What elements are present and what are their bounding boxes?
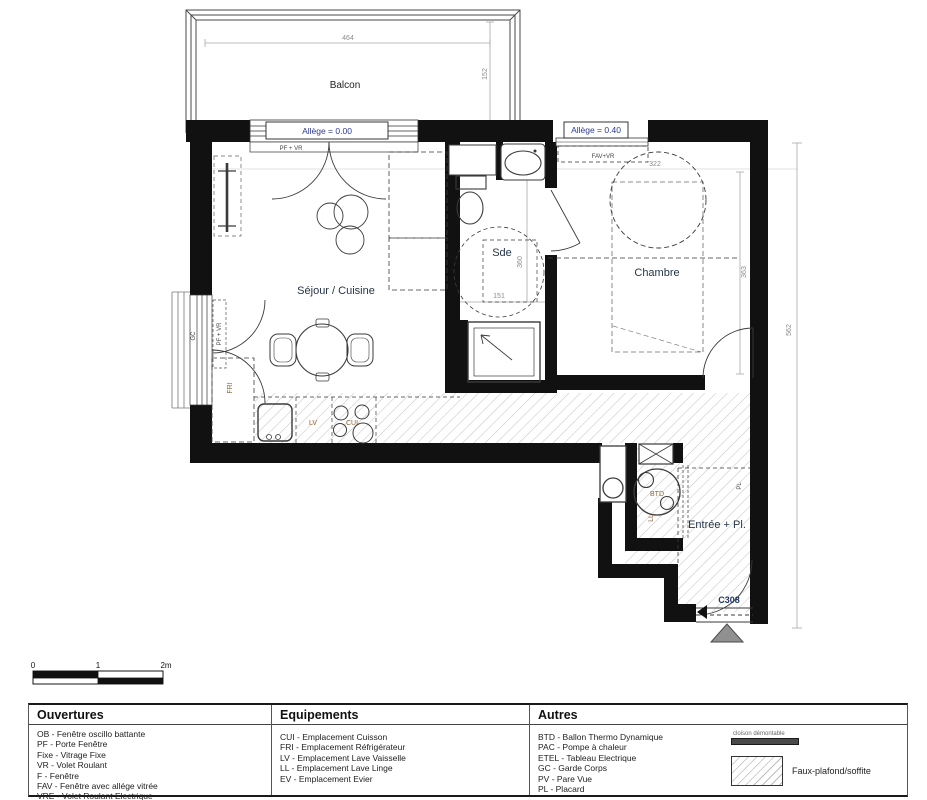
fri-label: FRI xyxy=(227,382,234,393)
scale-0: 0 xyxy=(31,661,36,670)
windows xyxy=(190,120,648,405)
dim-152: 152 xyxy=(482,68,489,80)
pf-vr-top-label: PF + VR xyxy=(280,146,304,152)
entrance-triangle xyxy=(711,624,743,642)
legend-autres: Autres BTD - Ballon Thermo Dynamique PAC… xyxy=(529,705,907,795)
dim-360: 360 xyxy=(517,256,524,268)
legend-item: VRE - Volet Roulant Electrique xyxy=(37,791,263,800)
gc-label: GC xyxy=(191,331,197,341)
legend-ouvertures: Ouvertures OB - Fenêtre oscillo battante… xyxy=(29,705,271,795)
legend-equipements-title: Equipements xyxy=(272,705,529,725)
dim-322: 322 xyxy=(649,161,661,168)
chambre-label: Chambre xyxy=(634,267,679,279)
balcony-label: Balcon xyxy=(330,80,361,91)
legend-item: LL - Emplacement Lave Linge xyxy=(280,763,521,773)
legend-item: LV - Emplacement Lave Vaisselle xyxy=(280,753,521,763)
legend-item: PF - Porte Fenêtre xyxy=(37,739,263,749)
floor-plan-drawing: Balcon 464 152 Allège = 0.00 PF + VR All… xyxy=(0,0,927,700)
legend-item: CUI - Emplacement Cuisson xyxy=(280,732,521,742)
ll-label: LL xyxy=(648,514,655,522)
dim-464: 464 xyxy=(342,35,354,42)
legend-item: FAV - Fenêtre avec allége vitrée xyxy=(37,781,263,791)
faux-plafond-label: Faux-plafond/soffite xyxy=(792,766,871,776)
dim-363: 363 xyxy=(741,266,748,278)
sde-label: Sde xyxy=(492,247,512,259)
bedroom-furniture xyxy=(548,152,738,352)
scale-2m: 2m xyxy=(160,661,171,670)
legend-item: PV - Pare Vue xyxy=(538,774,723,784)
scale-bar xyxy=(33,671,163,684)
legend-item: OB - Fenêtre oscillo battante xyxy=(37,729,263,739)
cui-label: CUI xyxy=(346,420,358,427)
legend-item: FRI - Emplacement Réfrigérateur xyxy=(280,742,521,752)
entree-label: Entrée + Pl. xyxy=(688,519,746,531)
legend-item: VR - Volet Roulant xyxy=(37,760,263,770)
btd-label: BTD xyxy=(650,491,664,498)
legend-item: GC - Garde Corps xyxy=(538,763,723,773)
dim-562: 562 xyxy=(786,324,793,336)
legend-ouvertures-title: Ouvertures xyxy=(29,705,271,725)
guard-rail xyxy=(172,292,190,408)
lv-label: LV xyxy=(309,420,317,427)
legend-symbols: cloison démontable Faux-plafond/soffite xyxy=(731,725,871,795)
legend-item: ETEL - Tableau Electrique xyxy=(538,753,723,763)
fav-vr-label: FAV+VR xyxy=(592,154,615,160)
cloison-demontable-label: cloison démontable xyxy=(733,731,871,737)
allege-000-label: Allège = 0.00 xyxy=(302,126,352,136)
legend-item: PAC - Pompe à chaleur xyxy=(538,742,723,752)
sejour-label: Séjour / Cuisine xyxy=(297,285,375,297)
legend-item: BTD - Ballon Thermo Dynamique xyxy=(538,732,723,742)
legend-item: Fixe - Vitrage Fixe xyxy=(37,750,263,760)
unit-number: C308 xyxy=(718,595,740,605)
legend-item: EV - Emplacement Evier xyxy=(280,774,521,784)
walls xyxy=(186,120,768,624)
balcony-railing xyxy=(186,10,520,133)
legend-autres-title: Autres xyxy=(530,705,907,725)
pl-label: PL xyxy=(737,482,743,490)
legend-item: PL - Placard xyxy=(538,784,723,794)
legend: Ouvertures OB - Fenêtre oscillo battante… xyxy=(28,703,908,797)
scale-1: 1 xyxy=(96,661,101,670)
legend-item: F - Fenêtre xyxy=(37,771,263,781)
floor-plan-page: Balcon 464 152 Allège = 0.00 PF + VR All… xyxy=(0,0,927,800)
pf-vr-left-label: PF + VR xyxy=(217,322,223,346)
faux-plafond-swatch xyxy=(731,756,783,786)
legend-equipements: Equipements CUI - Emplacement Cuisson FR… xyxy=(271,705,529,795)
dim-151: 151 xyxy=(493,293,505,300)
cloison-demontable-symbol xyxy=(731,738,799,745)
allege-040-label: Allège = 0.40 xyxy=(571,125,621,135)
